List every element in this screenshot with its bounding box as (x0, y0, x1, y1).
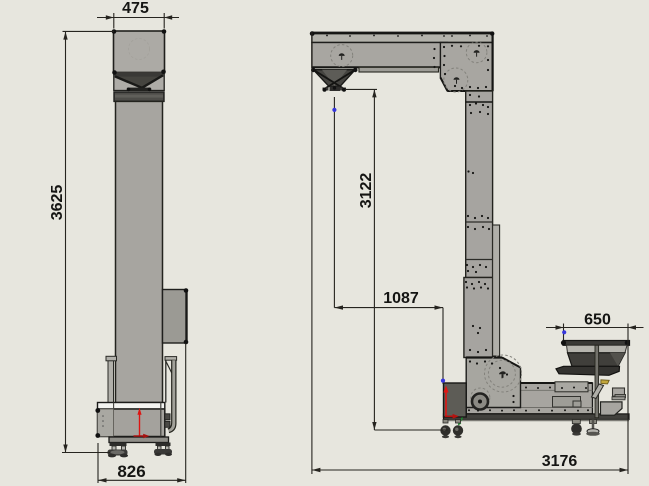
svg-text:475: 475 (122, 0, 149, 17)
svg-text:1087: 1087 (383, 290, 419, 307)
svg-text:3176: 3176 (542, 453, 578, 470)
svg-text:3122: 3122 (358, 173, 375, 209)
svg-text:3625: 3625 (49, 185, 66, 221)
svg-text:650: 650 (584, 312, 611, 329)
svg-text:826: 826 (117, 462, 145, 481)
